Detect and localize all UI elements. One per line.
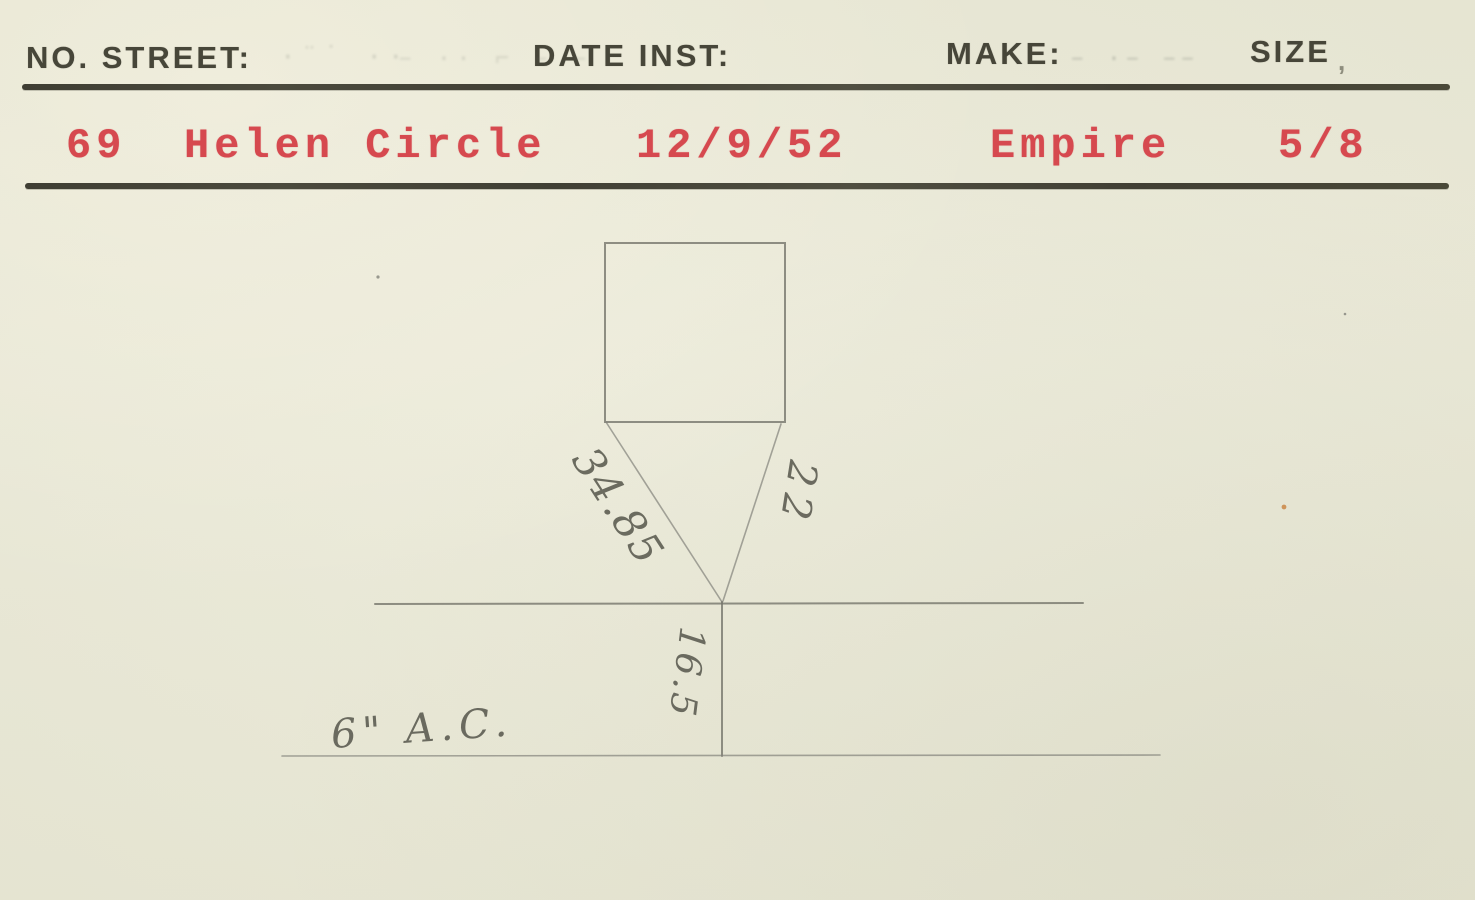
paper-speck-orange (1282, 505, 1287, 510)
service-depth-measurement: 16.5 (661, 625, 713, 721)
house-outline (605, 243, 785, 422)
paper-speck-pencil (376, 275, 379, 278)
curb-line (375, 603, 1083, 604)
left-tie-measurement: 34.85 (562, 438, 674, 574)
paper-speck-pencil-2 (1344, 313, 1347, 316)
main-pipe-label: 6" A.C. (329, 699, 514, 758)
right-tie-measurement: 22 (770, 456, 826, 530)
service-sketch: 34.85 22 16.5 6" A.C. (0, 0, 1475, 900)
water-main-line (282, 755, 1160, 756)
record-card: NO. STREET: DATE INST: MAKE: SIZE , ·¨˙ … (0, 0, 1475, 900)
